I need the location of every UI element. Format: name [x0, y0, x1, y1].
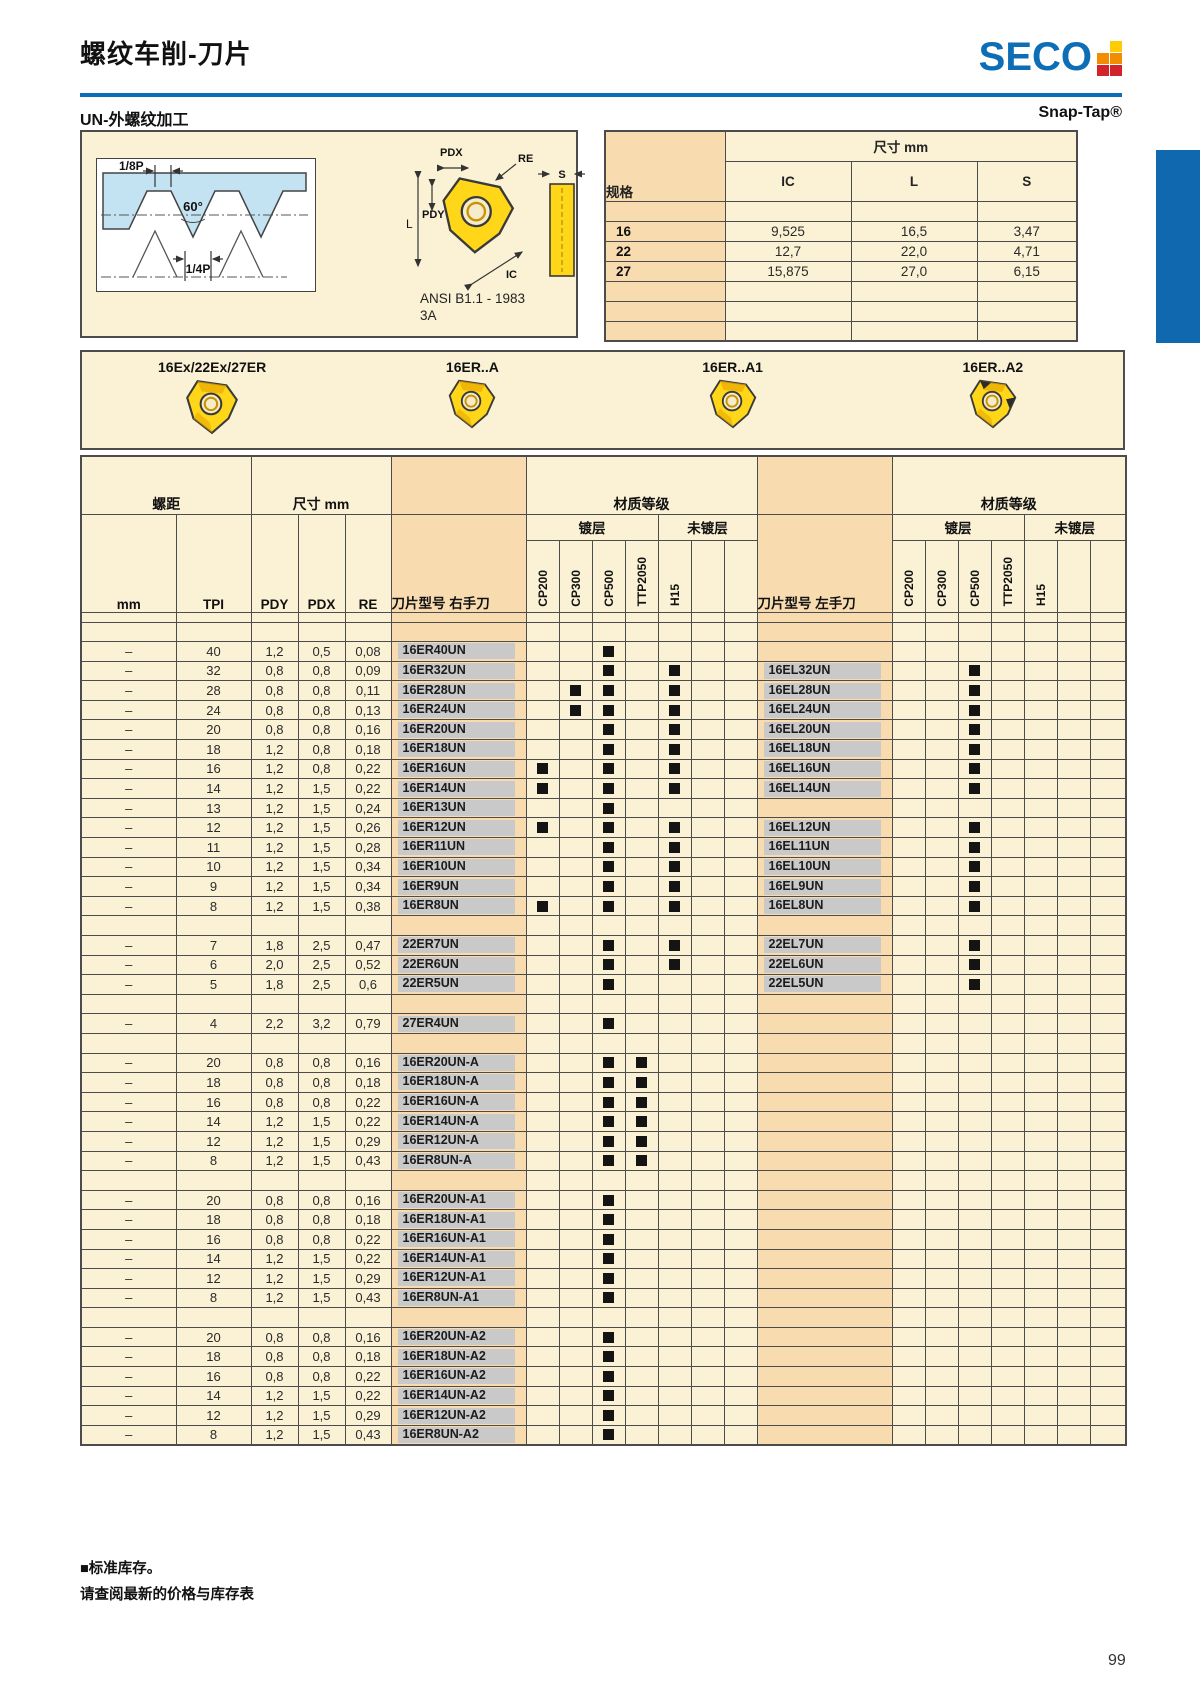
col-header-re: RE: [345, 514, 391, 612]
grade-mark-cell: [1057, 681, 1090, 701]
cell-re: 0,16: [345, 1190, 391, 1210]
table-row: –141,21,50,2216ER14UN-A2: [81, 1386, 1126, 1406]
cell-tpi: [176, 612, 251, 622]
grade-mark-cell: [691, 700, 724, 720]
grade-mark-cell: [592, 798, 625, 818]
cell-pdx: 2,5: [298, 936, 345, 956]
grade-mark-cell: [958, 1014, 991, 1034]
cell-re: 0,16: [345, 1327, 391, 1347]
grade-mark-cell: [1090, 955, 1126, 975]
grade-mark-cell: [559, 720, 592, 740]
insert-designation: 16ER12UN-A2: [398, 1408, 515, 1424]
grade-mark-cell: [1057, 622, 1090, 642]
grade-mark-cell: [724, 1249, 757, 1269]
grade-mark-cell: [1057, 857, 1090, 877]
table-row: –160,80,80,2216ER16UN-A2: [81, 1367, 1126, 1387]
stock-square: [669, 940, 680, 951]
grade-mark-cell: [592, 1053, 625, 1073]
grade-mark-cell: [526, 1386, 559, 1406]
cell-re: 0,79: [345, 1014, 391, 1034]
cell-pdy: 0,8: [251, 681, 298, 701]
grade-mark-cell: [592, 740, 625, 760]
grade-mark-cell: [658, 1269, 691, 1289]
cell-pdy: 0,8: [251, 1092, 298, 1112]
grade-mark-cell: [925, 1425, 958, 1445]
cell-re: 0,34: [345, 857, 391, 877]
grade-mark-cell: [625, 1112, 658, 1132]
grade-mark-cell: [925, 1406, 958, 1426]
cell-tpi: [176, 622, 251, 642]
cell-lh-designation: [757, 1073, 892, 1093]
cell-rh-designation: 16ER8UN-A2: [391, 1425, 526, 1445]
table-row: –81,21,50,4316ER8UN-A: [81, 1151, 1126, 1171]
grade-mark-cell: [724, 700, 757, 720]
stock-square: [603, 1057, 614, 1068]
grade-mark-cell: [724, 896, 757, 916]
cell-re: 0,43: [345, 1425, 391, 1445]
stock-square: [669, 763, 680, 774]
grade-mark-cell: [526, 838, 559, 858]
table-row: –81,21,50,4316ER8UN-A2: [81, 1425, 1126, 1445]
cell-pdy: 0,8: [251, 1327, 298, 1347]
spacer-row: [81, 1308, 1126, 1328]
cell-re: 0,29: [345, 1406, 391, 1426]
table-row: –81,21,50,4316ER8UN-A1: [81, 1288, 1126, 1308]
grade-mark-cell: [958, 1425, 991, 1445]
rh-header-spacer: [391, 456, 526, 514]
grade-mark-cell: [724, 818, 757, 838]
stock-square: [603, 783, 614, 794]
grade-mark-cell: [892, 740, 925, 760]
grade-mark-cell: [526, 1171, 559, 1191]
grade-mark-cell: [925, 1288, 958, 1308]
col-header-ic: IC: [725, 161, 851, 201]
col-header-mm: mm: [81, 514, 176, 612]
grade-mark-cell: [691, 661, 724, 681]
grade-mark-cell: [1090, 1425, 1126, 1445]
cell-pdy: 0,8: [251, 1229, 298, 1249]
col-header-pdx: PDX: [298, 514, 345, 612]
grade-mark-cell: [559, 1425, 592, 1445]
grade-mark-cell: [1024, 779, 1057, 799]
cell-rh-designation: 16ER12UN-A2: [391, 1406, 526, 1426]
grade-mark-cell: [1024, 622, 1057, 642]
cell-mm: –: [81, 1249, 176, 1269]
grade-mark-cell: [724, 1190, 757, 1210]
grade-mark-cell: [1090, 1367, 1126, 1387]
cell-tpi: 8: [176, 896, 251, 916]
grade-mark-cell: [1057, 1367, 1090, 1387]
grade-mark-cell: [691, 1210, 724, 1230]
grade-mark-cell: [991, 759, 1024, 779]
grade-mark-cell: [559, 1229, 592, 1249]
grade-mark-cell: [892, 1288, 925, 1308]
cell-rh-designation: [391, 612, 526, 622]
svg-text:L: L: [406, 217, 413, 231]
grade-mark-cell: [925, 1053, 958, 1073]
grade-mark-cell: [691, 1053, 724, 1073]
cell-pdy: 0,8: [251, 1073, 298, 1093]
cell-pdx: 0,8: [298, 1327, 345, 1347]
grade-mark-cell: [892, 975, 925, 995]
grade-mark-cell: [925, 1033, 958, 1053]
grade-mark-cell: [559, 740, 592, 760]
grade-mark-cell: [925, 975, 958, 995]
grade-mark-cell: [724, 1269, 757, 1289]
cell-rh-designation: [391, 916, 526, 936]
grade-mark-cell: [1024, 1131, 1057, 1151]
grade-mark-cell: [724, 1425, 757, 1445]
insert-style-label: 16ER..A2: [963, 359, 1024, 375]
grade-mark-cell: [925, 1367, 958, 1387]
grade-mark-cell: [1024, 1053, 1057, 1073]
cell-mm: –: [81, 896, 176, 916]
cell-lh-designation: [757, 1308, 892, 1328]
grade-mark-cell: [1024, 1347, 1057, 1367]
grade-mark-cell: [1057, 1288, 1090, 1308]
insert-designation: 16ER18UN-A2: [398, 1349, 515, 1365]
cell-lh-designation: [757, 1347, 892, 1367]
grade-mark-cell: [592, 612, 625, 622]
grade-mark-cell: [958, 1033, 991, 1053]
grade-mark-cell: [691, 896, 724, 916]
table-row: –200,80,80,1616ER20UN16EL20UN: [81, 720, 1126, 740]
cell-tpi: 16: [176, 1367, 251, 1387]
grade-mark-cell: [658, 1367, 691, 1387]
cell-pdy: [251, 612, 298, 622]
grade-mark-cell: [658, 838, 691, 858]
grade-mark-cell: [1090, 612, 1126, 622]
cell-rh-designation: 16ER12UN-A1: [391, 1269, 526, 1289]
cell-lh-designation: [757, 1367, 892, 1387]
cell-tpi: 18: [176, 1347, 251, 1367]
grade-mark-cell: [526, 1249, 559, 1269]
spec-size-cell: 22: [605, 241, 725, 261]
grade-mark-cell: [724, 779, 757, 799]
grade-mark-cell: [1057, 1073, 1090, 1093]
grade-mark-cell: [625, 720, 658, 740]
grade-mark-cell: [1090, 779, 1126, 799]
cell-pdx: 0,8: [298, 661, 345, 681]
grade-mark-cell: [1090, 622, 1126, 642]
grade-mark-cell: [592, 1151, 625, 1171]
grade-mark-cell: [691, 1269, 724, 1289]
grade-mark-cell: [625, 1229, 658, 1249]
grade-mark-cell: [991, 661, 1024, 681]
grade-mark-cell: [958, 1367, 991, 1387]
grade-mark-cell: [559, 936, 592, 956]
grade-mark-cell: [892, 955, 925, 975]
table-row: –160,80,80,2216ER16UN-A1: [81, 1229, 1126, 1249]
grade-mark-cell: [1057, 1308, 1090, 1328]
insert-designation: 16ER18UN-A: [398, 1074, 515, 1090]
cell-lh-designation: 16EL8UN: [757, 896, 892, 916]
insert-dimension-drawing: L PDY PDX RE IC S: [400, 144, 585, 299]
snap-tap-label: Snap-Tap®: [1039, 104, 1123, 122]
grade-mark-cell: [691, 1425, 724, 1445]
insert-designation: 22ER5UN: [398, 976, 515, 992]
grade-mark-cell: [958, 1229, 991, 1249]
grade-mark-cell: [658, 1406, 691, 1426]
cell-lh-designation: [757, 1033, 892, 1053]
grade-mark-cell: [1024, 1308, 1057, 1328]
grade-mark-cell: [925, 1347, 958, 1367]
cell-lh-designation: [757, 1171, 892, 1191]
cell-mm: –: [81, 838, 176, 858]
stock-square: [603, 940, 614, 951]
cell-pdx: 1,5: [298, 1151, 345, 1171]
table-row: –320,80,80,0916ER32UN16EL32UN: [81, 661, 1126, 681]
stock-square: [969, 705, 980, 716]
grade-mark-cell: [592, 818, 625, 838]
table-row: –180,80,80,1816ER18UN-A2: [81, 1347, 1126, 1367]
cell-pdx: [298, 622, 345, 642]
grade-mark-cell: [925, 1171, 958, 1191]
grade-mark-cell: [592, 700, 625, 720]
stock-square: [669, 705, 680, 716]
grade-mark-cell: [1024, 1249, 1057, 1269]
cell-tpi: 8: [176, 1425, 251, 1445]
cell-pdx: 1,5: [298, 1131, 345, 1151]
cell-lh-designation: [757, 1249, 892, 1269]
cell-pdy: 1,2: [251, 1131, 298, 1151]
grade-mark-cell: [691, 936, 724, 956]
spacer-row: [81, 612, 1126, 622]
cell-re: 0,16: [345, 1053, 391, 1073]
cell-tpi: [176, 994, 251, 1014]
spec-row: [605, 301, 1077, 321]
insert-designation: 16EL18UN: [764, 741, 881, 757]
grade-mark-cell: [892, 612, 925, 622]
cell-rh-designation: 16ER8UN-A: [391, 1151, 526, 1171]
grade-mark-cell: [925, 759, 958, 779]
stock-square: [669, 665, 680, 676]
grade-mark-cell: [526, 642, 559, 662]
cell-lh-designation: 22EL6UN: [757, 955, 892, 975]
cell-pdy: 1,2: [251, 1151, 298, 1171]
lh-header-spacer: [757, 456, 892, 514]
grade-mark-cell: [1057, 955, 1090, 975]
grade-mark-cell: [958, 642, 991, 662]
grade-mark-cell: [1057, 1327, 1090, 1347]
grade-mark-cell: [1024, 936, 1057, 956]
grade-mark-cell: [691, 798, 724, 818]
grade-mark-cell: [691, 838, 724, 858]
grade-mark-cell: [724, 1288, 757, 1308]
grade-mark-cell: [925, 622, 958, 642]
col-header-lh-designation: 刀片型号 左手刀: [757, 514, 892, 612]
cell-pdy: 1,2: [251, 1288, 298, 1308]
insert-designation: 16ER12UN-A1: [398, 1270, 515, 1286]
grade-mark-cell: [592, 1229, 625, 1249]
stock-square: [669, 881, 680, 892]
stock-square: [636, 1057, 647, 1068]
table-row: –62,02,50,5222ER6UN22EL6UN: [81, 955, 1126, 975]
grade-mark-cell: [991, 1308, 1024, 1328]
stock-square: [537, 783, 548, 794]
svg-text:IC: IC: [506, 269, 517, 281]
table-row: –91,21,50,3416ER9UN16EL9UN: [81, 877, 1126, 897]
grade-mark-cell: [559, 1406, 592, 1426]
grade-col-h15-rh: H15: [658, 540, 691, 612]
cell-mm: –: [81, 1210, 176, 1230]
cell-lh-designation: [757, 1131, 892, 1151]
grade-mark-cell: [658, 779, 691, 799]
grade-mark-cell: [625, 622, 658, 642]
cell-re: 0,22: [345, 1112, 391, 1132]
stock-square: [969, 881, 980, 892]
cell-pdy: 0,8: [251, 1190, 298, 1210]
grade-mark-cell: [958, 916, 991, 936]
cell-tpi: 10: [176, 857, 251, 877]
grade-mark-cell: [1090, 1229, 1126, 1249]
cell-pdy: 1,2: [251, 740, 298, 760]
stock-square: [603, 1429, 614, 1440]
grade-mark-cell: [1090, 1112, 1126, 1132]
grade-mark-cell: [991, 681, 1024, 701]
grade-mark-cell: [526, 1327, 559, 1347]
cell-rh-designation: 16ER20UN-A2: [391, 1327, 526, 1347]
insert-designation: 16EL8UN: [764, 898, 881, 914]
stock-square: [669, 783, 680, 794]
grade-mark-cell: [658, 1151, 691, 1171]
grade-mark-cell: [592, 955, 625, 975]
spacer-row: [81, 1033, 1126, 1053]
grade-mark-cell: [892, 1033, 925, 1053]
cell-re: 0,38: [345, 896, 391, 916]
grade-mark-cell: [1057, 661, 1090, 681]
grade-mark-cell: [592, 896, 625, 916]
grade-mark-cell: [991, 1033, 1024, 1053]
cell-re: 0,08: [345, 642, 391, 662]
spacer-row: [81, 994, 1126, 1014]
stock-square: [603, 744, 614, 755]
grade-mark-cell: [691, 1308, 724, 1328]
grade-mark-cell: [991, 1327, 1024, 1347]
grade-mark-cell: [958, 1092, 991, 1112]
grade-mark-cell: [625, 1406, 658, 1426]
grade-mark-cell: [559, 1033, 592, 1053]
cell-tpi: 12: [176, 1269, 251, 1289]
cell-pdx: 1,5: [298, 818, 345, 838]
cell-rh-designation: 16ER16UN: [391, 759, 526, 779]
col-header-tpi: TPI: [176, 514, 251, 612]
spec-value-cell: [977, 201, 1077, 221]
cell-pdx: 1,5: [298, 1112, 345, 1132]
cell-tpi: 20: [176, 720, 251, 740]
cell-re: 0,29: [345, 1269, 391, 1289]
spec-value-cell: 9,525: [725, 221, 851, 241]
grade-mark-cell: [625, 642, 658, 662]
grade-mark-cell: [1024, 1171, 1057, 1191]
cell-rh-designation: 16ER18UN-A2: [391, 1347, 526, 1367]
grade-mark-cell: [658, 975, 691, 995]
grade-mark-cell: [1024, 1112, 1057, 1132]
grade-mark-cell: [1024, 975, 1057, 995]
insert-designation: 16ER14UN: [398, 781, 515, 797]
grade-mark-cell: [658, 916, 691, 936]
grade-mark-cell: [691, 1367, 724, 1387]
grade-mark-cell: [991, 1210, 1024, 1230]
grade-mark-cell: [1090, 1151, 1126, 1171]
grade-mark-cell: [991, 896, 1024, 916]
grade-mark-cell: [958, 681, 991, 701]
grade-mark-cell: [958, 720, 991, 740]
stock-square: [570, 685, 581, 696]
grade-mark-cell: [892, 798, 925, 818]
cell-re: 0,34: [345, 877, 391, 897]
stock-square: [603, 881, 614, 892]
stock-square: [603, 646, 614, 657]
table-row: –42,23,20,7927ER4UN: [81, 1014, 1126, 1034]
grade-mark-cell: [1090, 759, 1126, 779]
grade-mark-cell: [1024, 1033, 1057, 1053]
spec-value-cell: 6,15: [977, 261, 1077, 281]
grade-mark-cell: [691, 975, 724, 995]
grade-mark-cell: [691, 818, 724, 838]
grade-mark-cell: [592, 1092, 625, 1112]
cell-tpi: 16: [176, 1229, 251, 1249]
grade-mark-cell: [559, 1014, 592, 1034]
cell-rh-designation: 16ER16UN-A2: [391, 1367, 526, 1387]
grade-mark-cell: [1090, 1131, 1126, 1151]
grade-mark-cell: [724, 1092, 757, 1112]
grade-mark-cell: [592, 916, 625, 936]
cell-rh-designation: 16ER32UN: [391, 661, 526, 681]
grade-mark-cell: [526, 1269, 559, 1289]
cell-tpi: 24: [176, 700, 251, 720]
cell-lh-designation: 16EL20UN: [757, 720, 892, 740]
grade-mark-cell: [526, 740, 559, 760]
stock-square: [969, 685, 980, 696]
cell-pdy: 0,8: [251, 1347, 298, 1367]
cell-rh-designation: 16ER11UN: [391, 838, 526, 858]
cell-mm: –: [81, 1092, 176, 1112]
grade-mark-cell: [1090, 1386, 1126, 1406]
cell-pdy: 1,2: [251, 1406, 298, 1426]
cell-mm: –: [81, 1425, 176, 1445]
grade-mark-cell: [892, 1269, 925, 1289]
cell-pdx: 2,5: [298, 955, 345, 975]
cell-pdx: [298, 1171, 345, 1191]
grade-mark-cell: [724, 1327, 757, 1347]
cell-re: 0,22: [345, 1229, 391, 1249]
cell-re: [345, 1033, 391, 1053]
cell-pdy: 1,2: [251, 1269, 298, 1289]
grade-mark-cell: [892, 642, 925, 662]
grade-mark-cell: [625, 1327, 658, 1347]
cell-rh-designation: 16ER14UN-A: [391, 1112, 526, 1132]
insert-designation: 16EL9UN: [764, 879, 881, 895]
cell-re: 0,18: [345, 1347, 391, 1367]
cell-re: [345, 1171, 391, 1191]
grade-mark-cell: [925, 1269, 958, 1289]
grade-mark-cell: [592, 1288, 625, 1308]
spec-value-cell: [725, 281, 851, 301]
cell-lh-designation: 16EL16UN: [757, 759, 892, 779]
grade-mark-cell: [625, 681, 658, 701]
cell-rh-designation: 16ER12UN: [391, 818, 526, 838]
grade-mark-cell: [958, 936, 991, 956]
grade-mark-cell: [925, 700, 958, 720]
stock-square: [603, 1410, 614, 1421]
spec-size-cell: [605, 201, 725, 221]
cell-pdx: 1,5: [298, 896, 345, 916]
insert-designation: 16EL16UN: [764, 761, 881, 777]
grade-mark-cell: [691, 1092, 724, 1112]
col-header-rh-designation: 刀片型号 右手刀: [391, 514, 526, 612]
grade-mark-cell: [925, 1014, 958, 1034]
